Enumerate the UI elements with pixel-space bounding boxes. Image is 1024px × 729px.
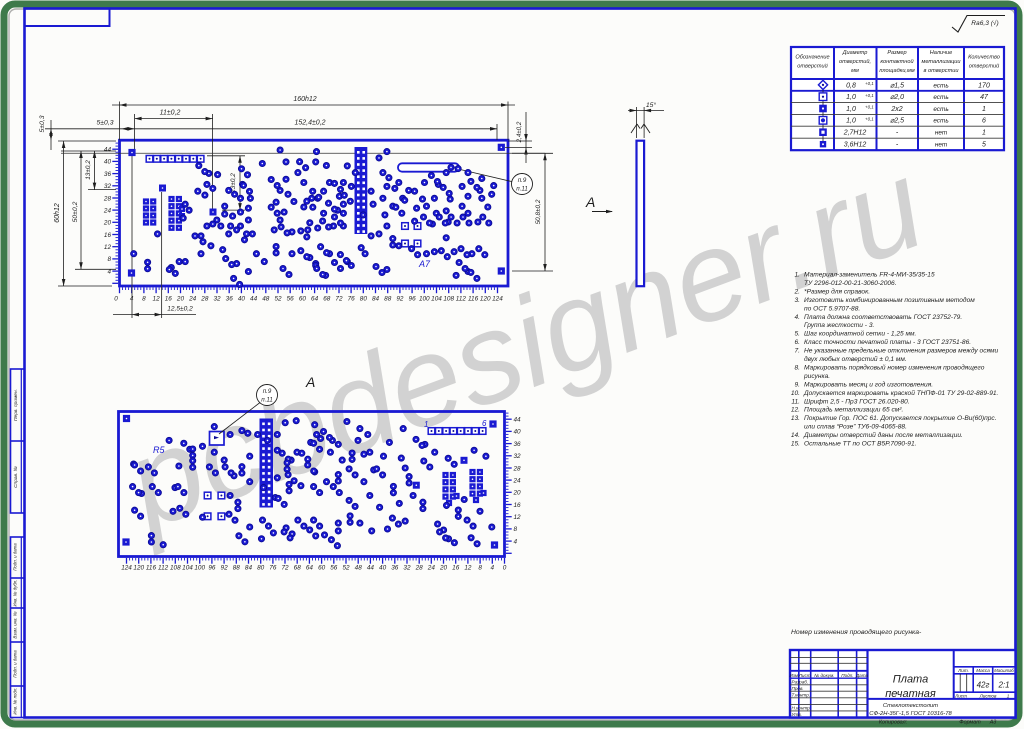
- svg-text:116: 116: [468, 296, 479, 303]
- svg-text:8.: 8.: [795, 364, 801, 371]
- svg-text:16: 16: [514, 502, 522, 509]
- svg-text:50±0,2: 50±0,2: [72, 201, 79, 222]
- svg-text:48: 48: [355, 564, 363, 571]
- svg-text:5: 5: [982, 142, 986, 149]
- svg-text:32: 32: [514, 453, 522, 460]
- svg-text:нет: нет: [935, 142, 948, 149]
- svg-text:80: 80: [360, 296, 368, 303]
- svg-text:80: 80: [257, 564, 265, 571]
- svg-text:Покрытие Гор. ПОС 61. Допускае: Покрытие Гор. ПОС 61. Допускается покрыт…: [804, 415, 997, 422]
- svg-text:есть: есть: [933, 118, 948, 125]
- svg-text:4: 4: [491, 564, 495, 571]
- svg-text:4.: 4.: [795, 314, 801, 321]
- svg-text:32: 32: [213, 296, 221, 303]
- svg-text:Разраб.: Разраб.: [792, 679, 809, 684]
- svg-text:152,4±0,2: 152,4±0,2: [294, 120, 325, 127]
- svg-text:1: 1: [1007, 693, 1010, 698]
- svg-text:10.: 10.: [791, 390, 800, 397]
- svg-text:Изготовить комбинированным поз: Изготовить комбинированным позитивным ме…: [804, 296, 975, 304]
- svg-text:3.: 3.: [795, 297, 801, 304]
- svg-text:32: 32: [104, 183, 112, 190]
- svg-text:108: 108: [170, 564, 181, 571]
- svg-text:112: 112: [158, 564, 169, 571]
- svg-text:Инв. № подл.: Инв. № подл.: [13, 687, 18, 714]
- svg-text:64: 64: [306, 564, 314, 571]
- svg-text:Плата должна соответствовать Г: Плата должна соответствовать ГОСТ 23752-…: [804, 313, 962, 321]
- svg-text:Дата: Дата: [855, 673, 869, 678]
- svg-text:15.: 15.: [791, 441, 800, 448]
- svg-text:+0,1: +0,1: [865, 105, 874, 110]
- svg-text:есть: есть: [933, 94, 948, 101]
- svg-text:44: 44: [104, 146, 112, 153]
- svg-text:Шрифт 2,5 - Пр3 ГОСТ 26.020-80: Шрифт 2,5 - Пр3 ГОСТ 26.020-80.: [804, 398, 910, 405]
- svg-text:60: 60: [299, 296, 307, 303]
- svg-text:Диаметр: Диаметр: [842, 50, 868, 56]
- svg-text:или сплав “Розе” ТУ6-09-4065-8: или сплав “Розе” ТУ6-09-4065-88.: [804, 424, 907, 431]
- svg-text:1,0: 1,0: [846, 94, 856, 101]
- svg-text:112: 112: [456, 296, 467, 303]
- svg-text:28: 28: [415, 564, 424, 571]
- svg-text:5±0,3: 5±0,3: [97, 120, 114, 127]
- svg-text:рисунка.: рисунка.: [803, 373, 830, 380]
- svg-text:104: 104: [182, 564, 193, 571]
- svg-text:11±0,2: 11±0,2: [160, 110, 181, 117]
- svg-text:32: 32: [403, 564, 411, 571]
- svg-text:12: 12: [153, 296, 161, 303]
- svg-text:64: 64: [311, 296, 319, 303]
- svg-text:104: 104: [431, 296, 442, 303]
- svg-text:Количество: Количество: [968, 55, 1000, 61]
- svg-text:170: 170: [978, 82, 990, 89]
- svg-text:84: 84: [372, 296, 380, 303]
- svg-text:8: 8: [107, 256, 111, 263]
- svg-text:76: 76: [348, 296, 356, 303]
- svg-text:А7: А7: [418, 259, 431, 269]
- svg-text:+0,1: +0,1: [865, 81, 874, 86]
- svg-text:16: 16: [104, 232, 112, 239]
- svg-text:п.11: п.11: [516, 186, 528, 193]
- svg-text:50,8±0,2: 50,8±0,2: [535, 199, 542, 224]
- svg-text:печатная: печатная: [885, 688, 936, 700]
- svg-text:12,5±0,2: 12,5±0,2: [167, 306, 193, 313]
- svg-text:п.11: п.11: [261, 397, 273, 404]
- svg-text:Формат: Формат: [959, 720, 981, 726]
- svg-text:А3: А3: [989, 720, 997, 726]
- svg-text:Не указанные предельные отклон: Не указанные предельные отклонения разме…: [804, 347, 999, 355]
- svg-text:Наличие: Наличие: [930, 50, 952, 56]
- svg-text:Копировал:: Копировал:: [879, 720, 908, 726]
- svg-text:60: 60: [318, 564, 326, 571]
- svg-text:56: 56: [287, 296, 295, 303]
- svg-text:Класс точности печатной платы: Класс точности печатной платы - 3 ГОСТ 2…: [804, 338, 971, 346]
- svg-text:68: 68: [323, 296, 331, 303]
- svg-text:Подп. и дата: Подп. и дата: [13, 543, 18, 571]
- svg-text:68: 68: [294, 564, 302, 571]
- svg-text:Листов: Листов: [979, 693, 997, 698]
- svg-text:6.: 6.: [795, 339, 801, 346]
- svg-text:Перв. примен.: Перв. примен.: [13, 389, 19, 421]
- svg-text:36: 36: [104, 171, 112, 178]
- svg-text:44: 44: [250, 296, 258, 303]
- svg-text:40: 40: [514, 429, 522, 436]
- svg-text:+0,1: +0,1: [865, 117, 874, 122]
- svg-text:24: 24: [103, 207, 112, 214]
- svg-text:⌀1,5: ⌀1,5: [890, 82, 904, 89]
- svg-text:Группа жесткости - 3.: Группа жесткости - 3.: [804, 322, 874, 329]
- svg-text:100: 100: [194, 564, 205, 571]
- svg-text:Площадь металлизации 65 см².: Площадь металлизации 65 см².: [804, 406, 903, 414]
- svg-text:Плата: Плата: [893, 674, 928, 686]
- svg-text:Материал-заменитель FR-4-МИ-35: Материал-заменитель FR-4-МИ-35/35-15: [804, 272, 935, 279]
- svg-text:20: 20: [176, 296, 185, 303]
- svg-text:1.: 1.: [795, 272, 801, 279]
- svg-text:14.: 14.: [791, 432, 800, 439]
- svg-text:47: 47: [980, 94, 989, 101]
- svg-text:36: 36: [514, 441, 522, 448]
- svg-text:16: 16: [452, 564, 460, 571]
- svg-text:Масштаб: Масштаб: [994, 668, 1014, 673]
- svg-text:2.: 2.: [794, 288, 801, 295]
- svg-text:8: 8: [478, 564, 482, 571]
- svg-text:8: 8: [514, 526, 518, 533]
- svg-text:96: 96: [208, 564, 216, 571]
- svg-text:1,0: 1,0: [846, 106, 856, 113]
- svg-text:16: 16: [165, 296, 173, 303]
- svg-text:8: 8: [142, 296, 146, 303]
- svg-text:Маркировать месяц и год изгото: Маркировать месяц и год изготовления.: [804, 380, 933, 388]
- svg-text:6: 6: [482, 419, 487, 428]
- svg-text:76: 76: [269, 564, 277, 571]
- svg-text:Стеклотекстолит: Стеклотекстолит: [883, 703, 938, 709]
- svg-text:96: 96: [409, 296, 417, 303]
- svg-text:40: 40: [379, 564, 387, 571]
- svg-text:Подп.: Подп.: [841, 673, 853, 678]
- svg-text:Обозначение: Обозначение: [795, 55, 829, 61]
- svg-text:1,0: 1,0: [846, 118, 856, 125]
- svg-text:120: 120: [480, 296, 491, 303]
- svg-text:44: 44: [367, 564, 375, 571]
- svg-text:12.: 12.: [791, 407, 800, 414]
- svg-text:28: 28: [513, 465, 522, 472]
- svg-text:44: 44: [514, 416, 522, 423]
- svg-text:Справ. №: Справ. №: [13, 466, 19, 488]
- svg-text:*Размер для справок.: *Размер для справок.: [804, 287, 870, 295]
- svg-text:15°: 15°: [646, 101, 657, 109]
- svg-text:40: 40: [238, 296, 246, 303]
- svg-text:контактной: контактной: [880, 58, 913, 65]
- svg-text:Инв. № дубл.: Инв. № дубл.: [13, 579, 18, 606]
- svg-text:⌀2,5: ⌀2,5: [890, 118, 904, 125]
- svg-text:9.: 9.: [795, 381, 801, 388]
- svg-text:13±0,2: 13±0,2: [85, 160, 92, 180]
- svg-text:42г: 42г: [977, 681, 990, 690]
- svg-text:Лист: Лист: [954, 693, 967, 698]
- svg-text:Размер: Размер: [887, 50, 906, 56]
- svg-text:2:1: 2:1: [997, 681, 1009, 690]
- svg-text:12: 12: [104, 244, 112, 251]
- svg-text:0: 0: [114, 296, 118, 303]
- svg-text:20: 20: [513, 490, 522, 497]
- svg-text:52: 52: [274, 296, 282, 303]
- svg-text:двух любых отверстий ± 0,1 мм.: двух любых отверстий ± 0,1 мм.: [804, 355, 907, 363]
- svg-text:4: 4: [514, 538, 518, 545]
- svg-text:28: 28: [103, 195, 112, 202]
- svg-text:Т.контр.: Т.контр.: [792, 692, 811, 697]
- svg-text:56: 56: [330, 564, 338, 571]
- svg-text:0,8: 0,8: [846, 82, 856, 89]
- svg-text:СФ-2Н-35Г-1,5 ГОСТ 10316-78: СФ-2Н-35Г-1,5 ГОСТ 10316-78: [869, 711, 952, 717]
- svg-text:ТУ 2296-012-00-21-3060-2006.: ТУ 2296-012-00-21-3060-2006.: [804, 280, 897, 287]
- svg-text:40: 40: [104, 159, 112, 166]
- svg-text:7.: 7.: [795, 348, 801, 355]
- svg-text:№ докум.: № докум.: [814, 673, 834, 678]
- svg-text:116: 116: [146, 564, 157, 571]
- svg-text:R5: R5: [153, 445, 165, 455]
- svg-text:11.: 11.: [791, 398, 800, 405]
- svg-text:А: А: [585, 194, 595, 210]
- svg-text:12: 12: [514, 514, 522, 521]
- svg-text:24: 24: [188, 296, 197, 303]
- svg-text:88: 88: [233, 564, 241, 571]
- svg-text:5±0,3: 5±0,3: [39, 115, 46, 132]
- svg-text:48: 48: [262, 296, 270, 303]
- svg-text:Диаметры отверстий даны после: Диаметры отверстий даны после металлизац…: [803, 431, 963, 439]
- svg-text:металлизации: металлизации: [921, 59, 960, 65]
- svg-text:36: 36: [391, 564, 399, 571]
- svg-text:1: 1: [982, 106, 986, 113]
- svg-text:124: 124: [492, 296, 503, 303]
- svg-text:13.: 13.: [791, 415, 800, 422]
- svg-text:отверстий: отверстий: [969, 62, 999, 69]
- svg-text:124: 124: [121, 564, 132, 571]
- svg-text:Н.контр.: Н.контр.: [792, 706, 811, 711]
- svg-text:2,4±0,2: 2,4±0,2: [516, 121, 523, 143]
- svg-text:24: 24: [513, 477, 522, 484]
- svg-text:Утв.: Утв.: [792, 712, 802, 717]
- svg-text:Пров.: Пров.: [792, 686, 804, 691]
- svg-text:1: 1: [982, 130, 986, 137]
- svg-text:24: 24: [427, 564, 436, 571]
- svg-text:Шаг координатной сетки - 1,25: Шаг координатной сетки - 1,25 мм.: [804, 330, 917, 338]
- svg-text:100: 100: [419, 296, 430, 303]
- svg-text:108: 108: [443, 296, 454, 303]
- svg-text:есть: есть: [933, 106, 948, 113]
- svg-text:12: 12: [464, 564, 472, 571]
- svg-text:Лит.: Лит.: [957, 668, 969, 673]
- svg-text:⌀2,0: ⌀2,0: [890, 94, 904, 101]
- svg-text:мм: мм: [851, 68, 859, 74]
- svg-text:2,7Н12: 2,7Н12: [843, 130, 867, 137]
- svg-text:нет: нет: [935, 130, 948, 137]
- svg-text:Остальные ТТ по ОСТ В5Р.7090-9: Остальные ТТ по ОСТ В5Р.7090-91.: [804, 441, 917, 448]
- svg-text:20: 20: [103, 220, 112, 227]
- svg-text:отверстий,: отверстий,: [839, 58, 871, 65]
- svg-text:Номер изменения проводящего ри: Номер изменения проводящего рисунка-: [791, 628, 922, 636]
- svg-text:в отверстии: в отверстии: [924, 68, 959, 74]
- svg-text:120: 120: [133, 564, 144, 571]
- svg-text:п.9: п.9: [518, 177, 527, 184]
- svg-text:+0,1: +0,1: [865, 93, 874, 98]
- svg-text:по ОСТ 5.9707-88.: по ОСТ 5.9707-88.: [804, 305, 860, 312]
- svg-text:отверстий: отверстий: [797, 62, 827, 69]
- svg-text:А: А: [305, 374, 315, 390]
- svg-text:72: 72: [335, 296, 343, 303]
- svg-text:2x2: 2x2: [890, 106, 902, 113]
- svg-text:Подп. и дата: Подп. и дата: [13, 650, 18, 678]
- svg-text:0: 0: [503, 564, 507, 571]
- svg-text:20: 20: [439, 564, 448, 571]
- svg-text:1: 1: [424, 420, 428, 429]
- svg-text:3,6Н12: 3,6Н12: [844, 142, 867, 149]
- svg-text:160h12: 160h12: [293, 96, 316, 103]
- svg-text:п.9: п.9: [263, 388, 272, 395]
- svg-text:60h12: 60h12: [54, 203, 61, 223]
- svg-text:72: 72: [281, 564, 289, 571]
- svg-text:92: 92: [396, 296, 404, 303]
- svg-text:Маркировать порядковый номер и: Маркировать порядковый номер изменения п…: [804, 363, 985, 371]
- svg-text:площадки,мм: площадки,мм: [879, 68, 915, 74]
- svg-text:84: 84: [245, 564, 253, 571]
- svg-text:Допускается маркировать краско: Допускается маркировать краской ТНПФ-01 …: [803, 389, 999, 397]
- svg-text:есть: есть: [933, 82, 948, 89]
- svg-text:36: 36: [226, 296, 234, 303]
- svg-text:Взам. инв. №: Взам. инв. №: [13, 611, 18, 638]
- svg-text:Ra6,3 (√): Ra6,3 (√): [971, 19, 998, 27]
- svg-text:5.: 5.: [795, 331, 801, 338]
- svg-text:28: 28: [200, 296, 209, 303]
- svg-text:6: 6: [982, 118, 986, 125]
- svg-text:52: 52: [342, 564, 350, 571]
- svg-text:92: 92: [221, 564, 229, 571]
- svg-text:Масса: Масса: [976, 668, 990, 673]
- svg-text:Лист: Лист: [798, 673, 811, 678]
- svg-text:88: 88: [384, 296, 392, 303]
